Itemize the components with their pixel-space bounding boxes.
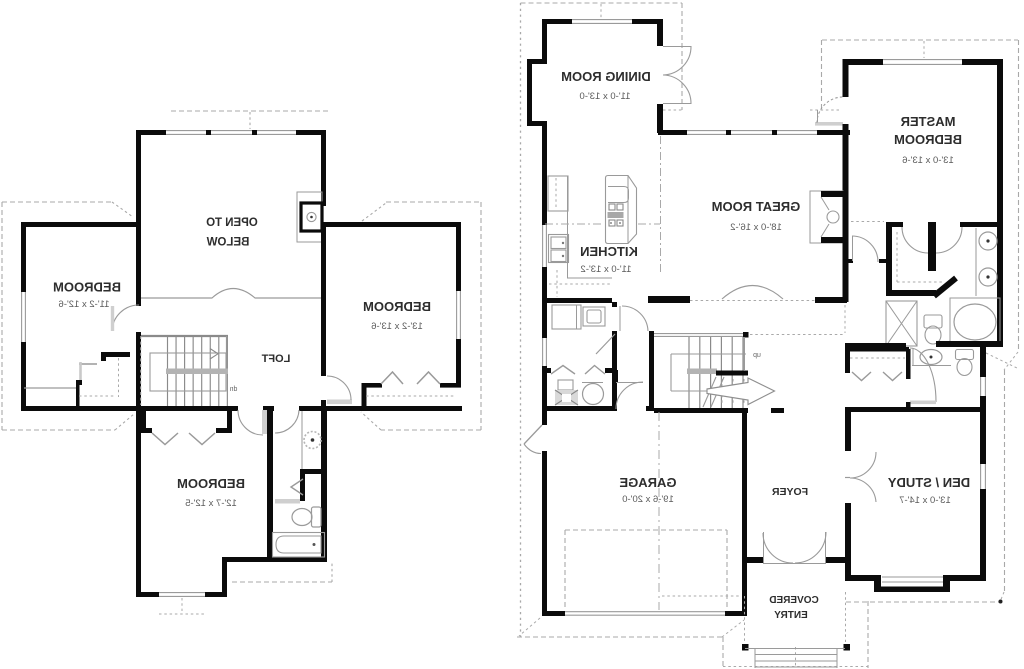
svg-text:11'-2 x 12'-6: 11'-2 x 12'-6 (59, 299, 110, 310)
svg-text:BELOW: BELOW (206, 237, 249, 249)
svg-text:BEDROOM: BEDROOM (53, 280, 121, 295)
svg-text:DINING ROOM: DINING ROOM (561, 69, 651, 84)
svg-text:BEDROOM: BEDROOM (363, 299, 431, 314)
svg-text:BEDROOM: BEDROOM (894, 132, 962, 147)
svg-text:13'-0 x 13'-6: 13'-0 x 13'-6 (902, 155, 954, 166)
svg-text:11'-0 x 13'-0: 11'-0 x 13'-0 (580, 91, 631, 102)
svg-text:12'-7 x 12'-5: 12'-7 x 12'-5 (185, 498, 237, 509)
svg-text:GREAT ROOM: GREAT ROOM (712, 199, 801, 214)
svg-text:19'-6 x 20'-0: 19'-6 x 20'-0 (622, 494, 674, 505)
svg-text:DEN / STUDY: DEN / STUDY (888, 475, 971, 490)
svg-text:BEDROOM: BEDROOM (177, 476, 245, 491)
svg-text:KITCHEN: KITCHEN (580, 244, 638, 259)
svg-text:OPEN TO: OPEN TO (206, 217, 258, 229)
svg-text:11'-0 x 13'-2: 11'-0 x 13'-2 (581, 264, 632, 275)
svg-text:GARAGE: GARAGE (619, 475, 676, 490)
svg-text:13'-2 x 13'-6: 13'-2 x 13'-6 (371, 321, 423, 332)
svg-text:COVERED: COVERED (769, 595, 818, 606)
svg-text:13'-0 x 14'-7: 13'-0 x 14'-7 (899, 495, 951, 506)
svg-text:dn: dn (230, 386, 238, 393)
svg-text:LOFT: LOFT (261, 353, 290, 365)
svg-text:ENTRY: ENTRY (774, 610, 808, 621)
svg-text:up: up (753, 352, 761, 359)
svg-text:18'-0 x 16'-2: 18'-0 x 16'-2 (730, 222, 782, 233)
svg-text:FOYER: FOYER (771, 486, 808, 498)
svg-text:MASTER: MASTER (900, 114, 956, 129)
